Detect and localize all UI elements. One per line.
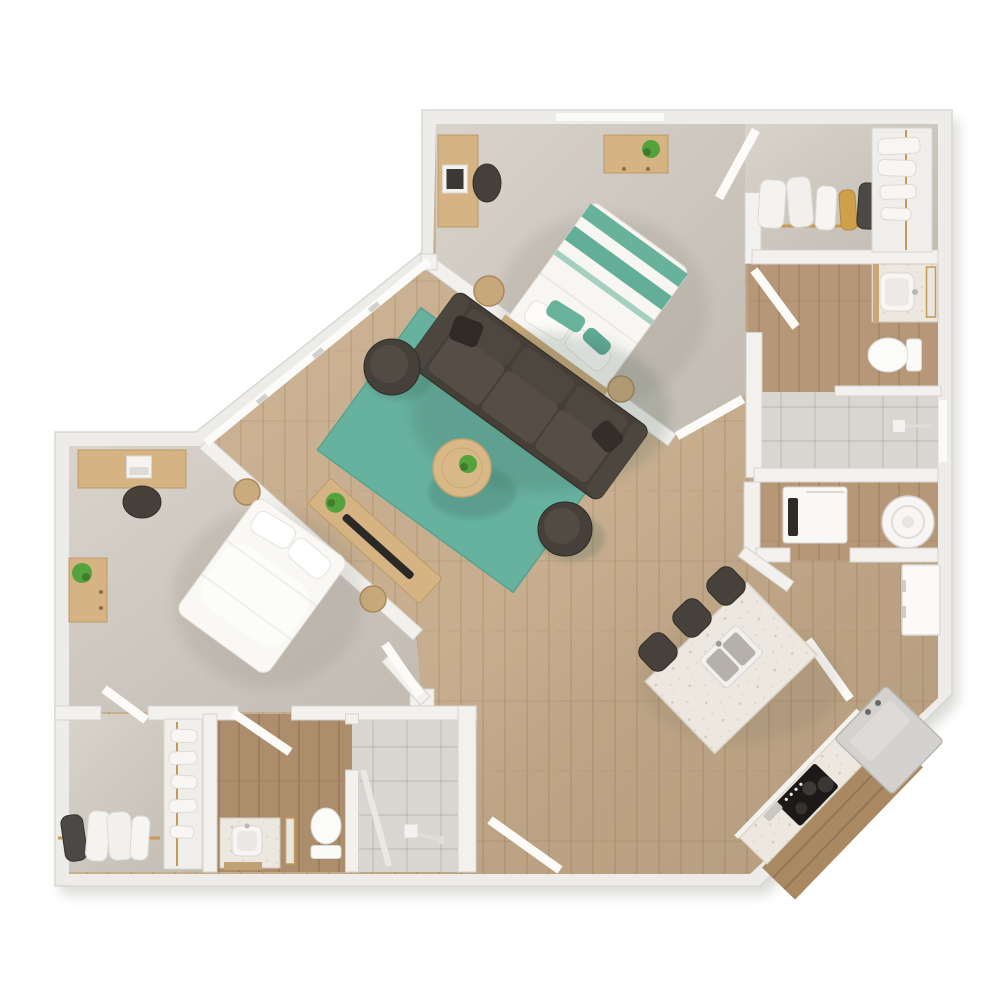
vanity-1-wood-edge bbox=[873, 264, 879, 322]
floorplan-stage bbox=[0, 0, 1000, 1000]
wall-bathroom1-west bbox=[746, 333, 762, 478]
wall-shower2-east bbox=[458, 706, 476, 872]
floor-shower-bathroom-1 bbox=[760, 392, 938, 470]
closet1-clothes-gold bbox=[839, 189, 858, 230]
wall-shower1-half bbox=[835, 386, 941, 396]
wall-laundry-south-b bbox=[850, 548, 938, 562]
wall-bottom-b bbox=[148, 706, 238, 720]
wall-bottom-a bbox=[55, 706, 101, 720]
closet1-stack-3 bbox=[880, 184, 916, 199]
sink-basin-bathroom-2 bbox=[237, 831, 257, 851]
dresser-knob-1 bbox=[622, 167, 626, 171]
tall-cabinet-white bbox=[902, 565, 940, 635]
washer-vent-slot bbox=[788, 498, 798, 536]
toilet-tank-bathroom-1 bbox=[907, 339, 922, 371]
basket-by-console bbox=[360, 586, 386, 612]
shower-fixture-bathroom-1 bbox=[893, 420, 906, 433]
refrigerator-knob-2 bbox=[875, 700, 881, 706]
wall-bathroom2-shower bbox=[346, 770, 359, 872]
plant-on-coffee-table-dark bbox=[460, 463, 468, 471]
ottoman-1-cushion bbox=[370, 345, 408, 383]
toilet-bowl-bathroom-1 bbox=[868, 338, 908, 372]
closet2-clothes-white-3 bbox=[129, 815, 150, 860]
cabinet-handle-1 bbox=[902, 580, 906, 592]
toilet-bowl-bathroom-2 bbox=[311, 808, 341, 844]
closet1-stack-1 bbox=[878, 137, 921, 155]
pouf-basket-bedroom2-left bbox=[474, 276, 504, 306]
shower-fixture-bathroom-2 bbox=[404, 824, 418, 838]
desk-chair-bedroom-2 bbox=[473, 164, 501, 202]
bath-mat-bathroom-2 bbox=[224, 862, 262, 870]
shelf-knob-2 bbox=[99, 606, 103, 610]
closet1-clothes-white-2 bbox=[786, 176, 814, 228]
floorplan-canvas bbox=[0, 0, 1000, 1000]
faucet-bathroom-2 bbox=[245, 824, 250, 829]
closet2-stack-2 bbox=[169, 751, 197, 765]
closet1-clothes-white-1 bbox=[757, 179, 786, 229]
closet2-stack-5 bbox=[170, 826, 194, 839]
water-heater-cap bbox=[902, 516, 914, 528]
cabinet-handle-2 bbox=[902, 606, 906, 618]
wall-bottom-c bbox=[292, 706, 477, 720]
floorplan-layers bbox=[55, 110, 958, 900]
plant-on-dresser-dark bbox=[643, 148, 651, 156]
monitor-screen-bedroom-2 bbox=[447, 169, 464, 189]
faucet-bathroom-1 bbox=[912, 289, 918, 295]
ottoman-2-cushion bbox=[544, 508, 580, 544]
laptop-keys bbox=[130, 467, 149, 475]
desk-chair-bedroom-1 bbox=[123, 486, 161, 518]
mirror-bathroom-1 bbox=[927, 267, 936, 317]
closet2-stack-4 bbox=[169, 799, 197, 813]
wall-closet2-bathroom2 bbox=[203, 714, 217, 872]
plant-on-shelf bbox=[72, 563, 92, 583]
shower-head-bathroom-2 bbox=[437, 836, 445, 844]
shelf-knob-1 bbox=[99, 590, 103, 594]
closet1-stack-4 bbox=[881, 207, 912, 221]
toilet-tank-bathroom-2 bbox=[311, 846, 341, 859]
dresser-knob-2 bbox=[646, 167, 650, 171]
mirror-bathroom-2 bbox=[286, 818, 295, 864]
closet1-stack-2 bbox=[878, 159, 917, 176]
wall-shower1-laundry bbox=[754, 468, 938, 482]
closet1-clothes-white-3 bbox=[815, 186, 837, 231]
plant-on-shelf-dark bbox=[82, 573, 90, 581]
sink-basin-bathroom-1 bbox=[885, 278, 909, 306]
closet2-stack-1 bbox=[171, 729, 197, 743]
refrigerator-knob-1 bbox=[865, 709, 871, 715]
wall-bathroom2-shower-stub bbox=[346, 714, 359, 724]
closet2-stack-3 bbox=[171, 775, 198, 789]
